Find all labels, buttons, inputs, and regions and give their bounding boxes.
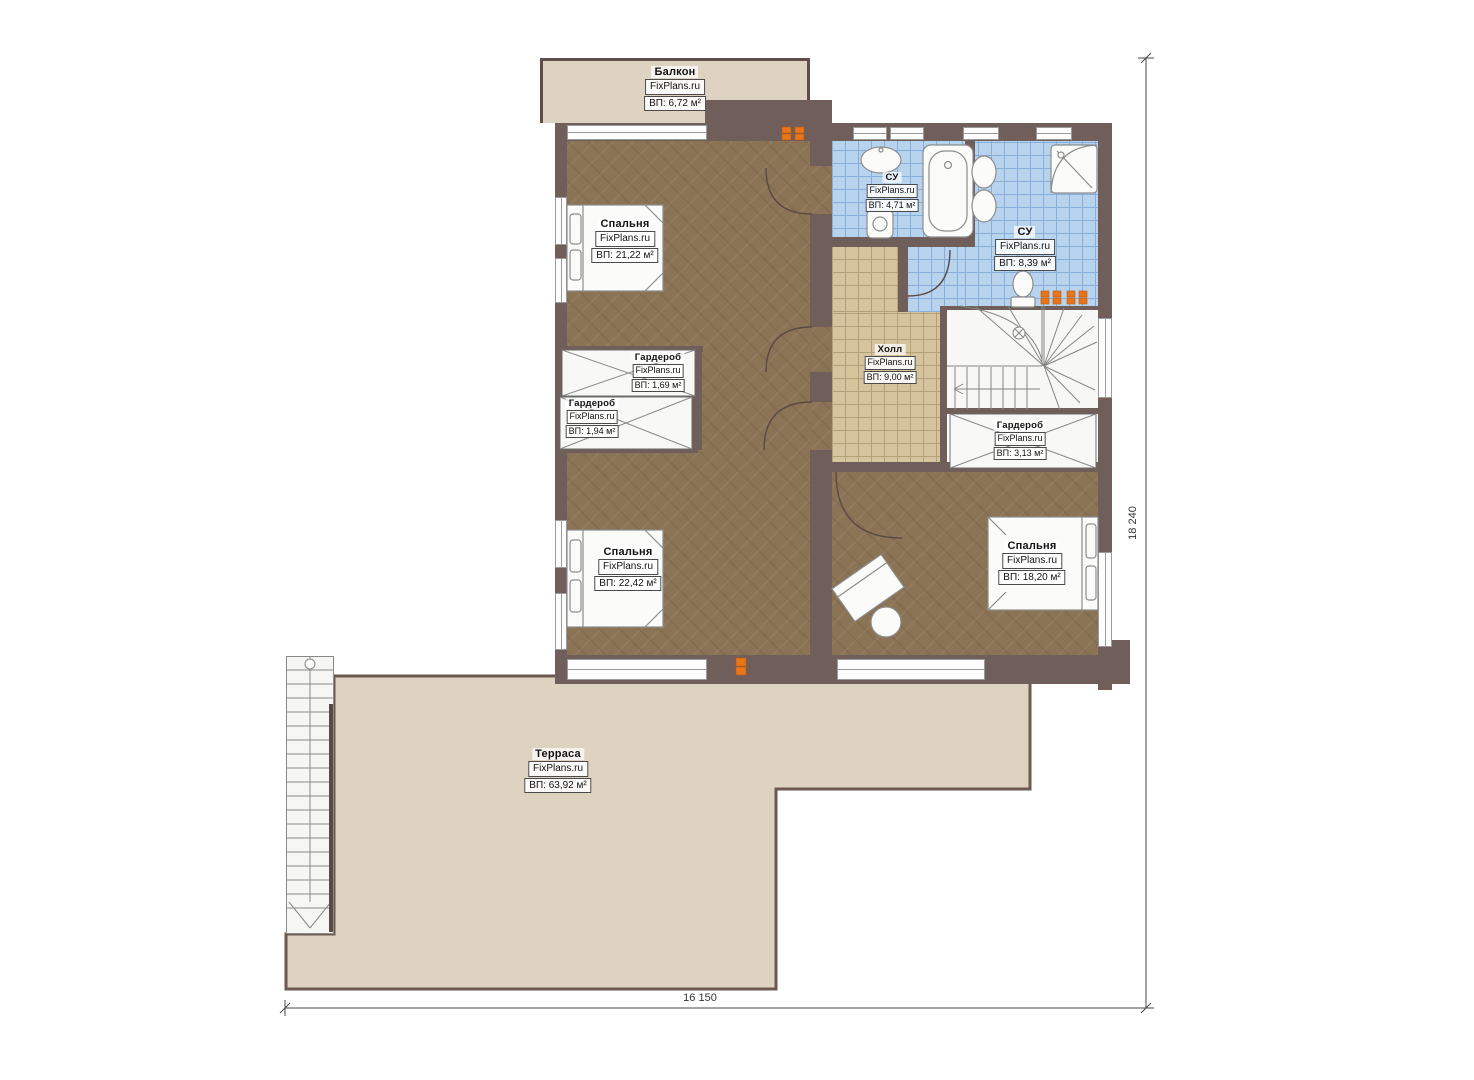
window-left-4 bbox=[555, 593, 567, 650]
window-left-3 bbox=[555, 520, 567, 568]
area-box: ВП: 3,13 м² bbox=[994, 447, 1047, 461]
door-gap-bedroom2 bbox=[810, 402, 832, 450]
dimension-width: 16 150 bbox=[683, 992, 717, 1004]
room-name: Балкон bbox=[652, 66, 699, 78]
brand-box: FixPlans.ru bbox=[866, 184, 917, 198]
area-box: ВП: 18,20 м² bbox=[998, 570, 1065, 586]
brand-box: FixPlans.ru bbox=[864, 356, 915, 370]
room-name: СУ bbox=[882, 172, 901, 183]
room-name: Спальня bbox=[598, 218, 653, 230]
room-name: Терраса bbox=[532, 748, 584, 760]
brand-box: FixPlans.ru bbox=[632, 364, 683, 378]
wall-wardrobe-east bbox=[692, 348, 702, 450]
door-gap-passage bbox=[810, 327, 832, 372]
room-name: Холл bbox=[875, 344, 906, 355]
brand-box: FixPlans.ru bbox=[528, 761, 588, 777]
label-bedroom2: Спальня FixPlans.ru ВП: 22,42 м² bbox=[594, 546, 661, 591]
brand-box: FixPlans.ru bbox=[645, 79, 705, 95]
window-top-3 bbox=[963, 127, 999, 140]
label-terrace: Терраса FixPlans.ru ВП: 63,92 м² bbox=[524, 748, 591, 793]
wall-bath-divider bbox=[965, 141, 975, 247]
wall-hall-bath2 bbox=[898, 247, 908, 312]
room-name: СУ bbox=[1014, 226, 1035, 238]
room-name: Гардероб bbox=[632, 352, 685, 363]
brand-box: FixPlans.ru bbox=[995, 239, 1055, 255]
label-wardrobe1: Гардероб FixPlans.ru ВП: 1,69 м² bbox=[632, 352, 685, 392]
window-left-2 bbox=[555, 258, 567, 303]
area-box: ВП: 21,22 м² bbox=[591, 248, 658, 264]
floor-bath-2-lobby bbox=[905, 242, 965, 312]
window-right-1 bbox=[1098, 318, 1112, 398]
area-box: ВП: 8,39 м² bbox=[994, 256, 1056, 272]
terrace-shape bbox=[286, 676, 1030, 989]
wall-central bbox=[810, 141, 832, 657]
label-hall: Холл FixPlans.ru ВП: 9,00 м² bbox=[864, 344, 917, 384]
wall-stairs-wardrobe bbox=[947, 408, 1098, 414]
window-top-4 bbox=[1036, 127, 1072, 140]
door-gap-bedroom1 bbox=[810, 166, 832, 214]
area-box: ВП: 4,71 м² bbox=[866, 199, 919, 213]
label-bedroom1: Спальня FixPlans.ru ВП: 21,22 м² bbox=[591, 218, 658, 263]
label-balcony: Балкон FixPlans.ru ВП: 6,72 м² bbox=[644, 66, 706, 111]
area-box: ВП: 22,42 м² bbox=[594, 576, 661, 592]
floor-hall-lower bbox=[832, 312, 945, 470]
wall-hall-stairs bbox=[940, 306, 947, 470]
label-wardrobe3: Гардероб FixPlans.ru ВП: 3,13 м² bbox=[994, 420, 1047, 460]
area-box: ВП: 63,92 м² bbox=[524, 778, 591, 794]
brand-box: FixPlans.ru bbox=[1002, 553, 1062, 569]
dimension-height: 18 240 bbox=[1127, 506, 1139, 540]
floor-plan: Балкон FixPlans.ru ВП: 6,72 м² Спальня F… bbox=[0, 0, 1474, 1080]
brand-box: FixPlans.ru bbox=[994, 432, 1045, 446]
wall-wardrobe-south bbox=[556, 447, 698, 453]
wall-top-block bbox=[705, 100, 832, 141]
room-name: Спальня bbox=[601, 546, 656, 558]
area-box: ВП: 1,69 м² bbox=[632, 379, 685, 393]
window-top-2 bbox=[890, 127, 924, 140]
floor-staircase bbox=[945, 306, 1098, 412]
area-box: ВП: 6,72 м² bbox=[644, 96, 706, 112]
window-top-1 bbox=[853, 127, 887, 140]
window-bottom-1 bbox=[567, 659, 707, 680]
room-name: Гардероб bbox=[994, 420, 1047, 431]
exterior-staircase bbox=[286, 656, 334, 934]
area-box: ВП: 9,00 м² bbox=[864, 371, 917, 385]
label-wardrobe2: Гардероб FixPlans.ru ВП: 1,94 м² bbox=[566, 398, 619, 438]
room-name: Гардероб bbox=[566, 398, 619, 409]
brand-box: FixPlans.ru bbox=[598, 559, 658, 575]
room-name: Спальня bbox=[1005, 540, 1060, 552]
label-bath2: СУ FixPlans.ru ВП: 8,39 м² bbox=[994, 226, 1056, 271]
window-bottom-2 bbox=[837, 659, 985, 680]
area-box: ВП: 1,94 м² bbox=[566, 425, 619, 439]
window-left-1 bbox=[555, 197, 567, 245]
window-balcony-door bbox=[567, 125, 707, 140]
floor-hall-upper bbox=[832, 245, 905, 312]
label-bath1: СУ FixPlans.ru ВП: 4,71 м² bbox=[866, 172, 919, 212]
window-right-2 bbox=[1098, 552, 1112, 647]
brand-box: FixPlans.ru bbox=[595, 231, 655, 247]
wall-bedroom3-north bbox=[832, 462, 1098, 472]
wall-bath1-south bbox=[832, 237, 975, 247]
brand-box: FixPlans.ru bbox=[566, 410, 617, 424]
label-bedroom3: Спальня FixPlans.ru ВП: 18,20 м² bbox=[998, 540, 1065, 585]
wall-bath2-stairs bbox=[945, 306, 1098, 310]
